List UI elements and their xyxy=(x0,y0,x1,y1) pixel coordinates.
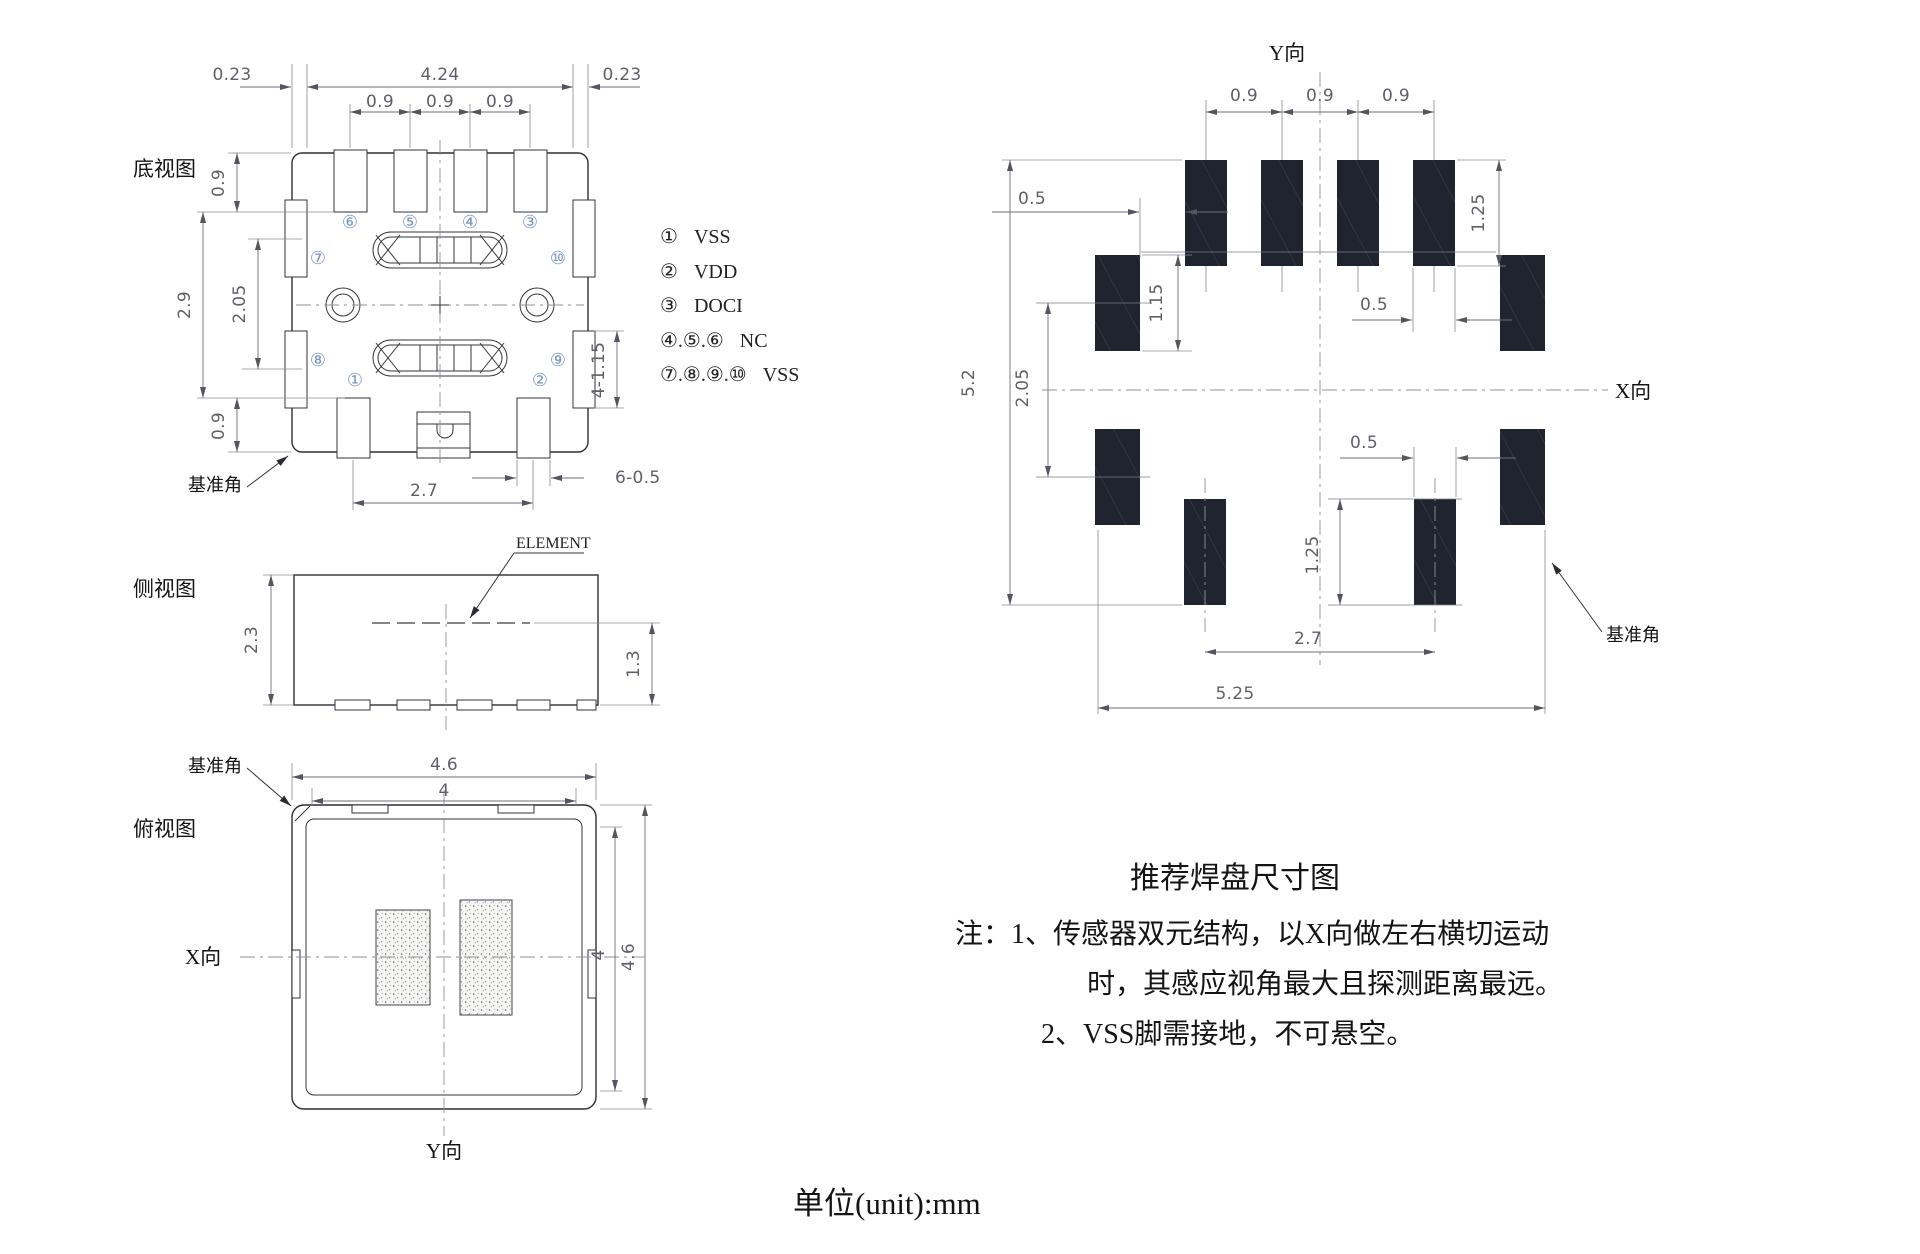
pin-numbers: ① xyxy=(660,226,678,248)
bottom-view: 底视图 xyxy=(133,64,661,510)
pad-right-lower xyxy=(1500,429,1545,525)
dim-023-left: 0.23 xyxy=(212,65,251,85)
pad-dim-09-a: 0.9 xyxy=(1230,86,1258,106)
pad-dim-27: 2.7 xyxy=(1294,629,1322,649)
pin-signal: VSS xyxy=(763,364,800,386)
side-view: 侧视图 ELEMENT 2.3 1.3 xyxy=(133,535,660,730)
drawing-canvas: 底视图 xyxy=(0,0,1920,1254)
top-view-datum-label: 基准角 xyxy=(188,756,242,776)
pad-dim-09-b: 0.9 xyxy=(1306,86,1334,106)
dim-205: 2.05 xyxy=(230,284,250,323)
pad-right-upper xyxy=(1500,255,1545,351)
pin-5-marker: ⑤ xyxy=(402,212,418,233)
bottom-view-label: 底视图 xyxy=(133,157,196,181)
pin-numbers: ④.⑤.⑥ xyxy=(660,330,724,352)
pin-signal: NC xyxy=(740,330,768,352)
pin-10-marker: ⑩ xyxy=(550,248,566,269)
dim-4-115: 4-1.15 xyxy=(589,342,609,399)
pad-dim-525: 5.25 xyxy=(1215,684,1254,704)
note-line-3: 2、VSS脚需接地，不可悬空。 xyxy=(1041,1010,1515,1060)
pin-9-marker: ⑨ xyxy=(550,350,566,371)
bottom-view-pin-numbers: ⑥ ⑤ ④ ③ ⑦ ⑩ ⑧ ⑨ ① ② xyxy=(310,212,566,391)
dim-29: 2.9 xyxy=(175,291,195,319)
pin-signal: VDD xyxy=(694,261,737,283)
pad-layout-view: Y向 X向 0 xyxy=(959,41,1660,714)
pin-definitions: ①VSS ②VDD ③DOCI ④.⑤.⑥NC ⑦.⑧.⑨.⑩VSS xyxy=(660,220,799,393)
pad-top-3 xyxy=(1337,160,1379,266)
dim-09-top: 0.9 xyxy=(209,169,229,197)
pin-6-marker: ⑥ xyxy=(342,212,358,233)
pad-y-axis-label: Y向 xyxy=(1269,41,1305,65)
dim-09-bottom: 0.9 xyxy=(209,412,229,440)
pin-3-marker: ③ xyxy=(522,212,538,233)
dim-09-c: 0.9 xyxy=(486,92,514,112)
sensor-element-left xyxy=(376,910,430,1005)
notes-block: 推荐焊盘尺寸图 注：1、传感器双元结构，以X向做左右横切运动 时，其感应视角最大… xyxy=(955,858,1515,1060)
top-view: 基准角 俯视图 X向 Y向 4.6 4 4 4.6 xyxy=(133,755,652,1163)
pad-x-axis-label: X向 xyxy=(1615,379,1651,403)
dim-09-b: 0.9 xyxy=(426,92,454,112)
x-axis-label: X向 xyxy=(185,945,221,969)
dim-6-05: 6-0.5 xyxy=(615,468,661,488)
pin-definition-row: ④.⑤.⑥NC xyxy=(660,324,799,359)
dim-4-top: 4 xyxy=(438,781,449,801)
pad-dim-52: 5.2 xyxy=(959,369,979,397)
pad-top-4 xyxy=(1413,160,1455,266)
unit-label: 单位(unit):mm xyxy=(793,1178,981,1223)
dim-4-right: 4 xyxy=(589,949,609,960)
dim-23: 2.3 xyxy=(242,626,262,654)
y-axis-label: Y向 xyxy=(426,1139,462,1163)
pin-signal: DOCI xyxy=(694,295,743,317)
element-label: ELEMENT xyxy=(516,535,591,552)
pin-definition-row: ③DOCI xyxy=(660,289,799,324)
pad-dim-115: 1.15 xyxy=(1147,283,1167,322)
pad-dim-125-top: 1.25 xyxy=(1469,193,1489,232)
pin-numbers: ③ xyxy=(660,295,678,317)
pin-1-marker: ① xyxy=(347,370,363,391)
pad-layout-title: 推荐焊盘尺寸图 xyxy=(955,858,1515,900)
bottom-view-datum: 基准角 xyxy=(188,456,288,495)
pad-dim-09-c: 0.9 xyxy=(1382,86,1410,106)
note-line-1: 注：1、传感器双元结构，以X向做左右横切运动 xyxy=(955,910,1515,960)
pin-4-marker: ④ xyxy=(462,212,478,233)
dim-46-right: 4.6 xyxy=(619,943,639,971)
pin-definition-row: ①VSS xyxy=(660,220,799,255)
pin-8-marker: ⑧ xyxy=(310,350,326,371)
datum-corner-label: 基准角 xyxy=(188,475,242,495)
pin-definition-row: ⑦.⑧.⑨.⑩VSS xyxy=(660,358,799,393)
dim-46-top: 4.6 xyxy=(430,755,458,775)
sensor-element-right xyxy=(460,900,512,1015)
pad-top-1 xyxy=(1185,160,1227,266)
dim-023-right: 0.23 xyxy=(602,65,641,85)
note-line-2: 时，其感应视角最大且探测距离最远。 xyxy=(1087,960,1515,1010)
dim-09-a: 0.9 xyxy=(366,92,394,112)
top-view-label: 俯视图 xyxy=(133,817,196,841)
pad-dim-05-mid: 0.5 xyxy=(1360,295,1388,315)
pin-definition-row: ②VDD xyxy=(660,255,799,290)
pad-top-2 xyxy=(1261,160,1303,266)
pad-dim-205: 2.05 xyxy=(1013,368,1033,407)
pin-numbers: ⑦.⑧.⑨.⑩ xyxy=(660,364,747,386)
pad-dim-05-upper: 0.5 xyxy=(1018,189,1046,209)
datasheet-page: 底视图 xyxy=(0,0,1920,1254)
dim-13: 1.3 xyxy=(624,650,644,678)
side-view-label: 侧视图 xyxy=(133,577,196,601)
pin-numbers: ② xyxy=(660,261,678,283)
pad-datum-label: 基准角 xyxy=(1606,625,1660,645)
dim-27: 2.7 xyxy=(410,481,438,501)
pad-dim-05-lower: 0.5 xyxy=(1350,433,1378,453)
pin-7-marker: ⑦ xyxy=(310,248,326,269)
pin-2-marker: ② xyxy=(532,370,548,391)
dim-424: 4.24 xyxy=(420,65,459,85)
pad-dim-125-bottom: 1.25 xyxy=(1303,535,1323,574)
pin-signal: VSS xyxy=(694,226,731,248)
